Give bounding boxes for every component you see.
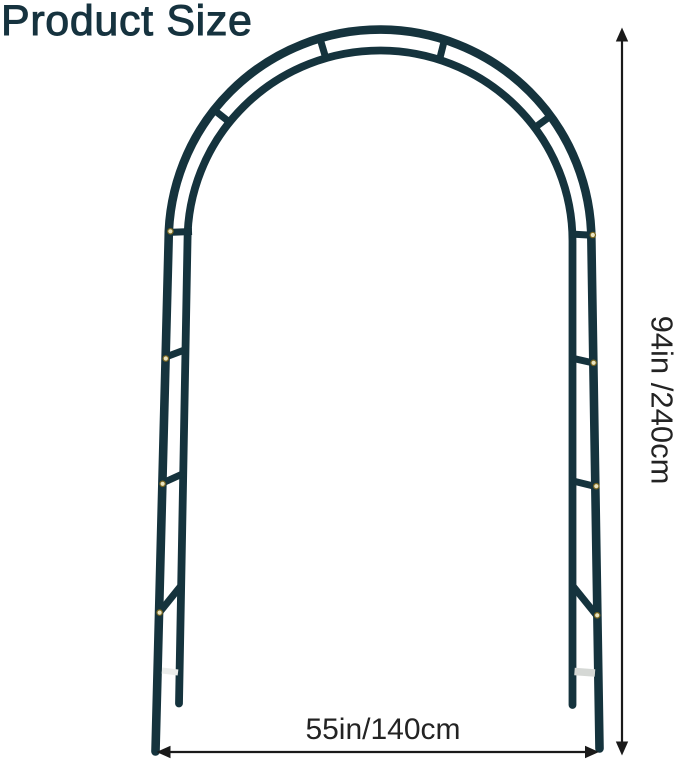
svg-text:55in/140cm: 55in/140cm: [305, 713, 460, 746]
svg-text:Product Size: Product Size: [1, 0, 253, 45]
svg-text:94in /240cm: 94in /240cm: [645, 316, 679, 485]
